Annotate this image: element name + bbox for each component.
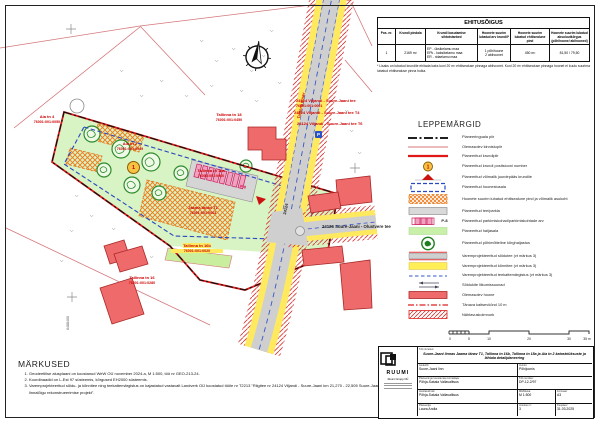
parcel-label: Aia tn 2 76001:001:0049 [104, 142, 156, 151]
position-number-icon: 1 [400, 161, 456, 172]
legend-item: Planeeritud tee/parkla [400, 206, 592, 216]
visibility-triangle-icon [400, 309, 456, 320]
svg-text:10: 10 [487, 337, 491, 341]
legend-item: P-8 Planeeritud parkimiskohad/parkimisko… [400, 216, 592, 226]
company-address-line [384, 388, 412, 389]
company-address-line [384, 385, 412, 386]
note-item: Varemprojekteeritud sõidu- ja kõnnitee n… [29, 383, 388, 395]
titleblock-row: Huvitatud isik: Põhja-Sakala Vallavalits… [417, 389, 592, 403]
field-value: Põhja-Sakala Vallavalitsus [417, 393, 517, 397]
parking-stalls-icon: P-8 [400, 216, 456, 226]
legend-item: Planeeringuala piir [400, 133, 592, 142]
titleblock-row: Planeerija: Laura Andla Joonise nr: 3 Ku… [417, 403, 592, 416]
legend: LEPPEMÄRGID Planeeringuala piir Olemasol… [400, 120, 592, 320]
road-parcel-label: 24124 Viljandi - Suure-Jaani tee T4 [294, 111, 378, 116]
field-value: DP-12-2/97 [517, 380, 592, 384]
cell-height: 81,50 / 79,50 [550, 45, 589, 61]
legend-item: Nähtavuskolmnurk [400, 309, 592, 320]
footprint-hatch-icon [400, 193, 456, 205]
company-subname: Ruumi Grupp OÜ [379, 378, 417, 381]
svg-text:20: 20 [527, 337, 531, 341]
coordinate-label: 6488400 [66, 316, 70, 330]
parcel-label: Tallinna tn 18 76001:001:0450 [200, 113, 258, 122]
parking-sign-icon: P [315, 131, 322, 138]
svg-text:35 m: 35 m [583, 337, 591, 341]
footpath-icon [400, 261, 456, 271]
legend-item: Planeeritud hoonestusala [400, 182, 592, 193]
drawing-sheet: Aia tn 4 76001:001:0050 Aia tn 2 76001:0… [0, 0, 600, 423]
company-name: RUUMI [379, 370, 417, 376]
planning-area-line-icon [400, 134, 456, 142]
project-title: Suure-Jaani linnas Jaama tänav T1, Talli… [417, 351, 592, 362]
title-block: RUUMI Ruumi Grupp OÜ Töö nimetus: Suure-… [378, 346, 594, 419]
carriageway-icon [400, 251, 456, 261]
col-header: Pos. nr. [378, 29, 396, 45]
cell-uses: EP - üksikelamu maa EPk - kaksikelamu ma… [426, 45, 478, 61]
legend-title: LEPPEMÄRGID [418, 120, 592, 129]
tree-icon [400, 236, 456, 251]
legend-item: Varemprojekteeritud sõidutee (vt märkus … [400, 251, 592, 261]
field-value: Suure-Jaani linn [417, 367, 517, 371]
legend-item: Hoonete suurim lubatud ehitisealune pind… [400, 193, 592, 206]
legend-item: Planeeritud põhimõtteline kõrghaljastus [400, 236, 592, 251]
col-header: Hoonete suurim lubatud absoluutkõrgus (p… [550, 29, 589, 45]
road-marking-icon [400, 272, 456, 280]
well-symbol [70, 99, 84, 113]
north-arrow [242, 40, 273, 73]
notes: MÄRKUSED Geodeetilise alusplaani on koos… [18, 359, 388, 396]
road-parking-icon [400, 206, 456, 216]
field-value: Põhijoonis [517, 367, 592, 371]
road-parcel-label: 24124 Viljandi - Suure-Jaani tee 76001:0… [296, 99, 376, 108]
field-value: 31.03.2025 [555, 407, 592, 411]
cell-footprint: 450 m² [511, 45, 550, 61]
protection-zone-line-icon [400, 301, 456, 309]
project-title-cell: Töö nimetus: Suure-Jaani linnas Jaama tä… [417, 347, 592, 364]
road-name-horizontal: 24126 Suure-Jaani - Olustvere tee [322, 224, 391, 229]
svg-text:0: 0 [449, 337, 451, 341]
parcel-label: Tallinna tn 16b 76001:001:0020 [171, 244, 223, 253]
planned-boundary-line-icon [400, 152, 456, 160]
parcel-label: Aia tn 4 76001:001:0050 [23, 115, 71, 124]
svg-text:5: 5 [468, 337, 470, 341]
traffic-direction-icon [400, 280, 456, 290]
ruumi-logo-icon [379, 351, 399, 369]
col-header: Krundi kasutamise sihtotstarbed [426, 29, 478, 45]
plot-position-number: 1 [127, 161, 140, 174]
col-header: Krundi pindala [396, 29, 426, 45]
legend-item: Olemasolev hoone [400, 290, 592, 300]
building-rights-table: EHITUSÕIGUS Pos. nr. Krundi pindala Krun… [377, 17, 590, 73]
field-value: A3 [555, 393, 592, 397]
cell-area: 2169 m² [396, 45, 426, 61]
company-logo-cell: RUUMI Ruumi Grupp OÜ [379, 347, 418, 416]
parcel-label: Tallinna tn 16 76001:001:0280 [114, 276, 170, 285]
svg-text:30: 30 [567, 337, 571, 341]
field-value: Laura Andla [417, 407, 517, 411]
cell-count: 1 põhihoone 2 abihoonet [478, 45, 511, 61]
col-header: Hoonete suurim lubatud ehitisealune pind [511, 29, 550, 45]
titleblock-row: Asukoht: Suure-Jaani linn Joonis: Põhijo… [417, 363, 592, 377]
col-header: Hoonete suurim lubatud arv krundil* [478, 29, 511, 45]
field-value: Põhja-Sakala Vallavalitsus [417, 380, 517, 384]
legend-item: Sõidukite liikumissuunad [400, 280, 592, 290]
legend-item: Planeeritud haljasala [400, 226, 592, 236]
parcel-label: Tallinna tn 18a 76001:001:0060 [183, 169, 239, 178]
legend-item: 1 Planeeritud krundi positsiooni number [400, 161, 592, 172]
field-value: 3 [517, 407, 555, 411]
svg-text:1: 1 [427, 164, 430, 170]
legend-item: Planeeritud võimalik juurdepääs krundile [400, 172, 592, 182]
legend-item: Tänava kaitsevöönd 10 m [400, 300, 592, 309]
notes-title: MÄRKUSED [18, 359, 388, 369]
legend-item: Planeeritud krundipiir [400, 152, 592, 161]
cell-pos: 1 [378, 45, 396, 61]
parcel-label: Jaama tänav T1 76001:001:0063 [177, 206, 229, 215]
access-triangle-icon [400, 172, 456, 182]
building-envelope-icon [400, 182, 456, 193]
road-parcel-label: 24124 Viljandi - Suure-Jaani tee T6 [297, 122, 381, 127]
field-value: M 1:500 [517, 393, 555, 397]
green-area-icon [400, 226, 456, 236]
scale-bar: 0 5 10 20 30 35 m [447, 328, 593, 343]
legend-item: Varemprojekteeritud teekattemärgistus (v… [400, 271, 592, 280]
legend-item: Olemasolev kinnistupiir [400, 142, 592, 151]
legend-item: Varemprojekteeritud kõnnitee (vt märkus … [400, 261, 592, 271]
existing-boundary-line-icon [400, 143, 456, 151]
existing-building-icon [400, 290, 456, 300]
parking-count-sample: P-8 [441, 218, 447, 223]
company-address-line [384, 383, 412, 384]
titleblock-row: Planeeringu koostamise korraldaja: Põhja… [417, 376, 592, 390]
table-footnote: * Lisaks on lubatud krundile ehitada kak… [377, 64, 590, 73]
table-title: EHITUSÕIGUS [378, 18, 589, 29]
